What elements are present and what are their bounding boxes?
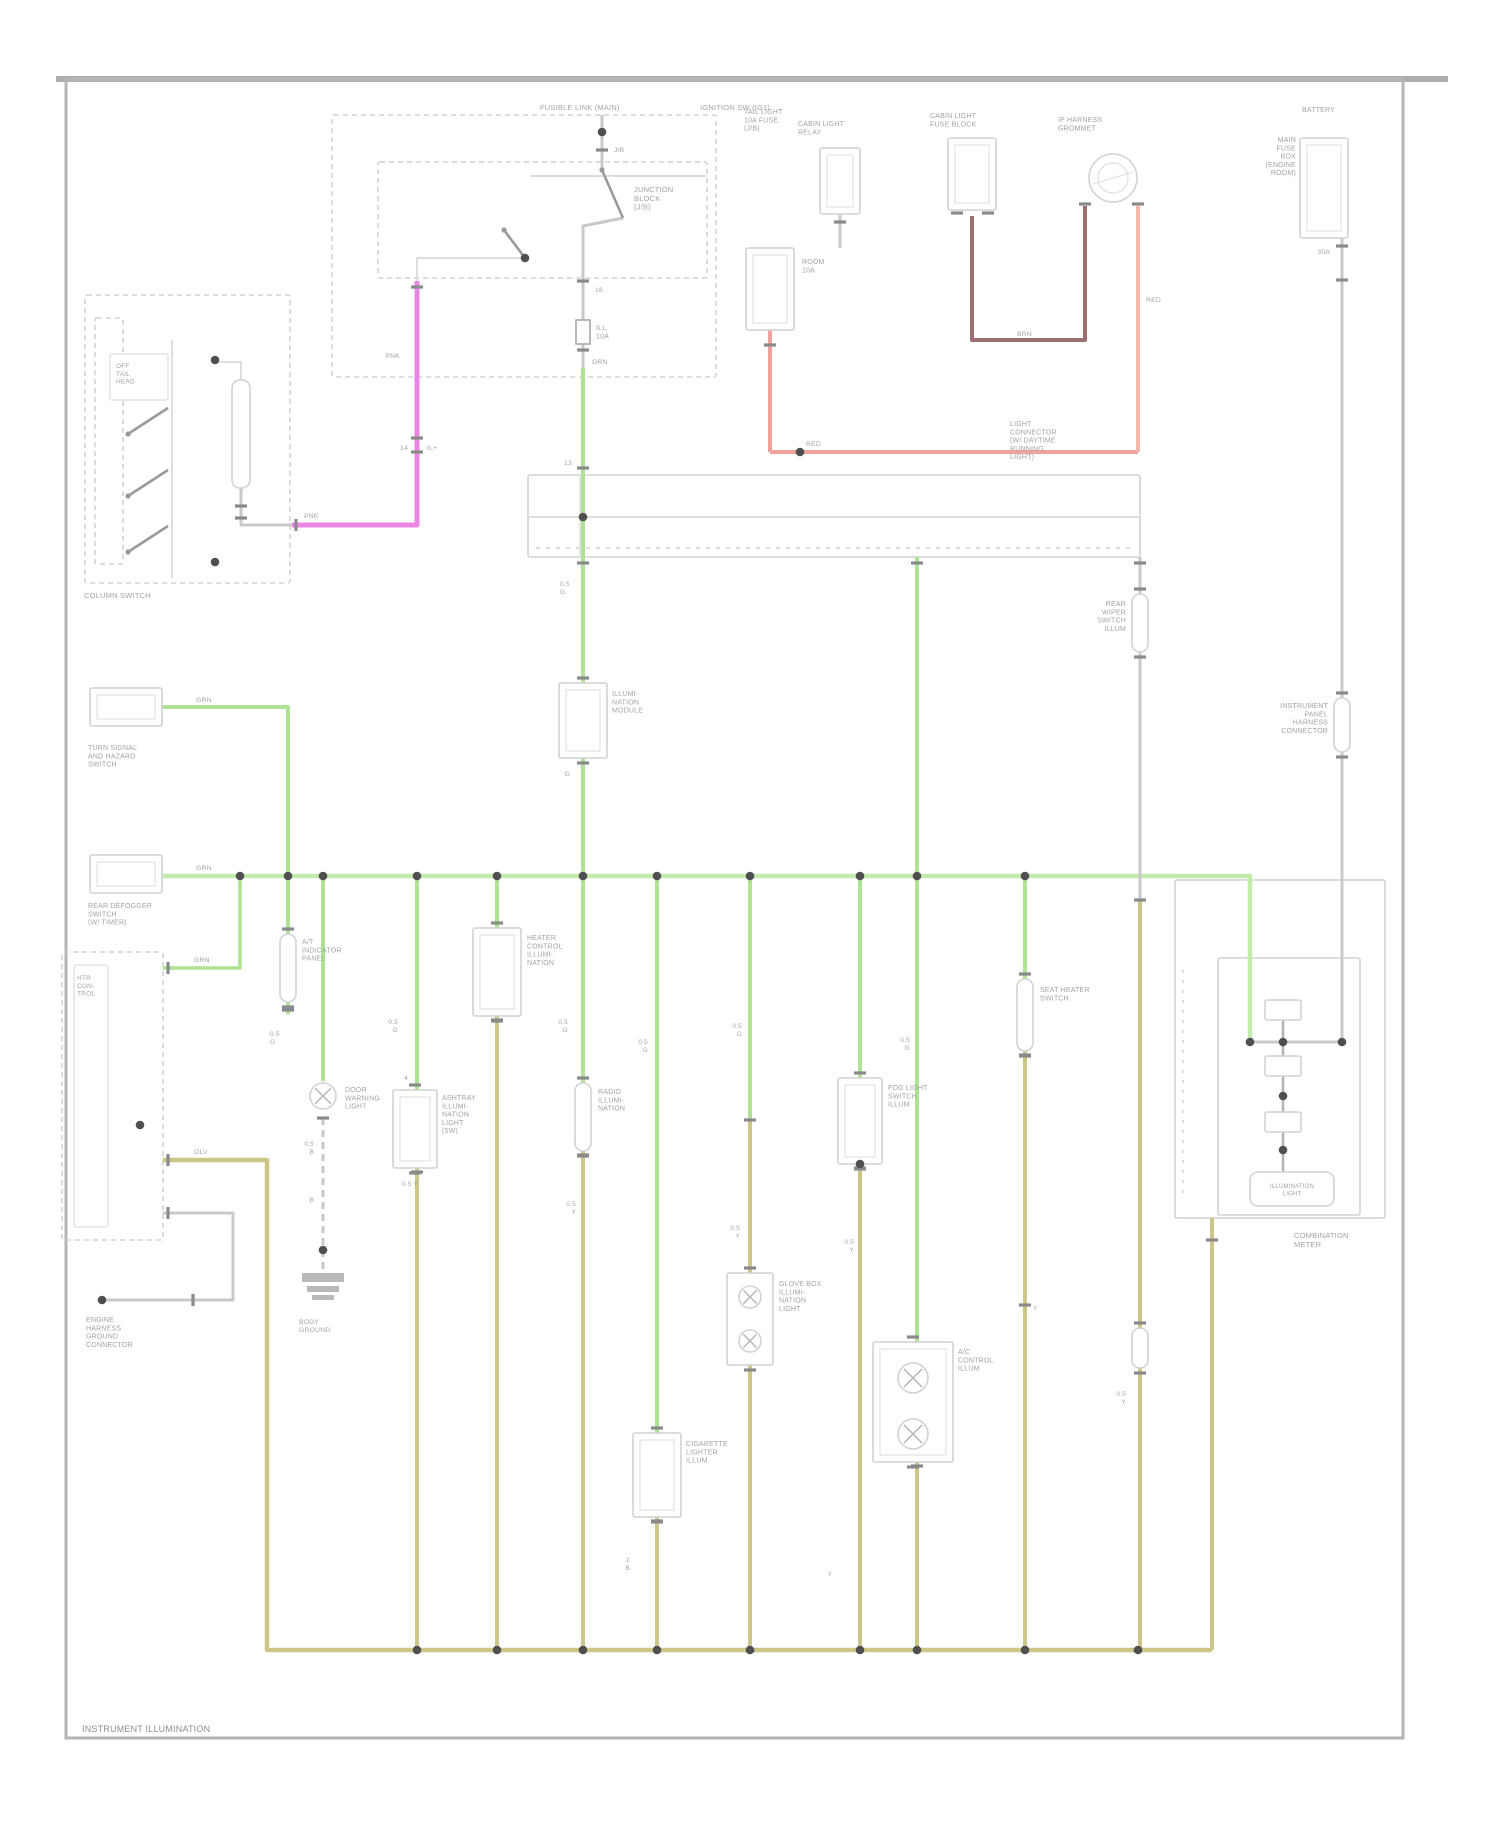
ashtray: ASHTRAYILLUMI-NATIONLIGHT(5W) <box>442 1095 476 1135</box>
connector-tick <box>411 285 423 288</box>
br657-code: 0.5G <box>638 1039 648 1054</box>
br750-code: 0.5G <box>732 1023 742 1038</box>
connector-tick <box>166 1154 169 1166</box>
bottom-bus-olive <box>163 1160 1212 1650</box>
glovebox: GLOVE BOXILLUMI-NATIONLIGHT <box>779 1281 822 1313</box>
connector-tick <box>1134 655 1146 658</box>
hc-olv: OLV <box>194 1149 208 1156</box>
junction-dot <box>98 1296 107 1305</box>
junction-dot <box>1246 1038 1255 1047</box>
main-grn: GRN <box>592 359 608 366</box>
connector-tick <box>577 676 589 679</box>
junction-block-inner <box>378 162 707 278</box>
junction-block: JUNCTIONBLOCK(J/B) <box>634 185 674 212</box>
junction-dot <box>1279 1092 1288 1101</box>
resistor-top-link <box>215 362 241 380</box>
br1025-code: Y <box>1033 1305 1038 1312</box>
dimmer-out <box>241 488 292 525</box>
connector-tick <box>1134 898 1146 901</box>
br417-code2: 0.5 Y <box>402 1181 419 1188</box>
junction-dot <box>653 872 662 881</box>
heater-ground-gray <box>102 1213 233 1300</box>
battery: BATTERY <box>1302 107 1335 114</box>
cabin-light-relay-box <box>820 148 860 214</box>
connector-tick <box>577 1076 589 1079</box>
connector-tick <box>166 1207 169 1219</box>
seat-heater-connector <box>1017 979 1033 1051</box>
junction-dot <box>579 513 588 522</box>
column-switch: COLUMN SWITCH <box>84 591 151 600</box>
body-ground-stack-bar2 <box>312 1295 334 1300</box>
heater-feed-green <box>163 876 240 968</box>
turn-signal: TURN SIGNALAND HAZARDSWITCH <box>88 745 137 769</box>
connector-tick <box>596 148 608 151</box>
connector-tick <box>409 1083 421 1086</box>
connector-tick <box>282 1005 294 1008</box>
junction-block-outer <box>332 115 716 377</box>
tail-fuse: TAIL LIGHT10A FUSE(J/B) <box>744 109 783 133</box>
connector-tick <box>411 436 423 439</box>
jb-switch-lever-2-pivot <box>501 227 506 232</box>
connector-tick <box>577 1153 589 1156</box>
feed-conn: J/B <box>614 147 625 154</box>
body-ground-stack-bar1 <box>307 1286 339 1292</box>
junction-dot <box>136 1121 145 1130</box>
heater-control-inner <box>74 965 108 1227</box>
brn-code: BRN <box>1017 331 1032 338</box>
br417-code: 0.5G <box>388 1019 398 1034</box>
junction-dot <box>579 872 588 881</box>
column-lever-3-pivot <box>125 549 130 554</box>
ip-connector: INSTRUMENTPANELHARNESSCONNECTOR <box>1280 703 1328 735</box>
connector-tick <box>1134 587 1146 590</box>
connector-tick <box>907 1335 919 1338</box>
column-lever-2-pivot <box>125 493 130 498</box>
connector-tick <box>294 519 297 531</box>
main-pin: 16 <box>595 287 603 294</box>
connector-tick <box>166 962 169 974</box>
junction-dot <box>653 1646 662 1655</box>
maroon-loop <box>972 206 1085 340</box>
junction-dot <box>319 872 328 881</box>
seat-heater: SEAT HEATERSWITCH <box>1040 987 1090 1002</box>
door-warning: DOORWARNINGLIGHT <box>345 1087 380 1111</box>
junction-dot <box>413 872 422 881</box>
lower-harness-connector <box>1132 1328 1148 1368</box>
junction-dot <box>284 872 293 881</box>
radio-illum: RADIOILLUMI-NATION <box>598 1089 625 1113</box>
junction-dot <box>1338 1038 1347 1047</box>
junction-dot <box>856 872 865 881</box>
module-out: G <box>565 771 571 778</box>
body-ground: BODYGROUND <box>299 1319 330 1334</box>
connector-tick <box>1019 972 1031 975</box>
bus-code2: Y <box>827 1571 832 1578</box>
connector-tick <box>744 1118 756 1121</box>
connector-tick <box>191 1294 194 1306</box>
connector-tick <box>854 1071 866 1074</box>
turn-signal-green <box>162 707 288 876</box>
column-lever-1-pivot <box>125 431 130 436</box>
room-fuse: ROOM10A <box>802 259 825 274</box>
connector-tick <box>1134 1371 1146 1374</box>
connector-tick <box>911 1464 923 1467</box>
connector-tick <box>411 450 423 453</box>
br917-code: 0.5G <box>900 1037 910 1052</box>
wide-pin-bottom: 0.5G <box>560 581 570 596</box>
pnk-conn-left: 14 <box>400 445 408 452</box>
def-grn: GRN <box>196 865 212 872</box>
meter-bulb-1 <box>1265 1000 1301 1020</box>
hc-grn: GRN <box>194 957 210 964</box>
junction-dot <box>521 254 530 263</box>
turn-signal-switch-box <box>90 688 162 726</box>
defogger-switch-box <box>90 855 162 893</box>
ts-grn: GRN <box>196 697 212 704</box>
pnk-conn-right: IL+ <box>427 445 437 452</box>
junction-dot <box>796 448 805 457</box>
sal-code: RED <box>1146 297 1161 304</box>
switch-link <box>583 218 623 281</box>
ill-fuse <box>576 320 590 344</box>
br323-code2: B <box>309 1197 314 1204</box>
connector-tick <box>317 1116 329 1119</box>
wiring-diagram-canvas: FUSIBLE LINK (MAIN)IGNITION SW (IG1)J/BJ… <box>0 0 1500 1828</box>
lighter-illum: CIGARETTELIGHTERILLUM <box>686 1441 728 1465</box>
ill-fuse-label: ILL10A <box>596 325 609 340</box>
column-lever-2 <box>128 470 168 496</box>
column-switch-box <box>85 295 290 583</box>
connector-tick <box>1079 202 1091 205</box>
jb-switch-lever-pivot <box>599 167 604 172</box>
ip-harness-connector <box>1334 698 1350 752</box>
ip-grommet-label: IP HARNESSGROMMET <box>1058 117 1102 132</box>
connector-tick <box>1336 755 1348 758</box>
junction-dot <box>1279 1038 1288 1047</box>
connector-tick <box>577 561 589 564</box>
connector-tick <box>911 561 923 564</box>
junction-dot <box>493 1646 502 1655</box>
connector-tick <box>1134 561 1146 564</box>
br860-code: 0.5Y <box>844 1239 854 1254</box>
connector-tick <box>744 1368 756 1371</box>
connector-tick <box>282 1008 294 1011</box>
red-code: RED <box>806 441 821 448</box>
defogger: REAR DEFOGGERSWITCH(W/ TIMER) <box>88 903 152 927</box>
connector-tick <box>1206 1238 1218 1241</box>
rear-wiper-connector <box>1132 594 1148 652</box>
connector-tick <box>982 211 994 214</box>
br417-pin: 4 <box>404 1075 408 1082</box>
body-ground-stack-bar0 <box>302 1273 344 1282</box>
connector-tick <box>1336 691 1348 694</box>
heater-illum: HEATERCONTROLILLUMI-NATION <box>527 935 563 967</box>
connector-tick <box>577 348 589 351</box>
connector-tick <box>411 1170 423 1173</box>
combination-meter: COMBINATIONMETER <box>1294 1231 1349 1249</box>
light-connector: LIGHTCONNECTOR(W/ DAYTIMERUNNINGLIGHT) <box>1010 421 1057 461</box>
ac-control: A/CCONTROLILLUM <box>958 1349 994 1373</box>
junction-dot <box>913 872 922 881</box>
dimmer-resistor <box>232 380 250 488</box>
column-lever-1 <box>128 408 168 434</box>
br750-code2: 0.5Y <box>730 1225 740 1240</box>
junction-dot <box>746 1646 755 1655</box>
br583-code2: 0.5Y <box>566 1201 576 1216</box>
illum-module: ILLUMI-NATIONMODULE <box>612 691 643 715</box>
meter-resistor <box>1265 1056 1301 1076</box>
connector-tick <box>282 927 294 930</box>
radio-illum-connector <box>575 1083 591 1151</box>
connector-tick <box>577 761 589 764</box>
junction-dot <box>579 1646 588 1655</box>
harness-ground: ENGINEHARNESSGROUNDCONNECTOR <box>86 1317 133 1349</box>
battery-amp: 30A <box>1317 249 1330 256</box>
connector-tick <box>1336 278 1348 281</box>
jb-switch-lever-2 <box>504 230 525 258</box>
br583-code: 0.5G <box>558 1019 568 1034</box>
connector-tick <box>744 1266 756 1269</box>
connector-tick <box>651 1519 663 1522</box>
connector-tick <box>1019 1053 1031 1056</box>
junction-dot <box>1279 1146 1288 1155</box>
junction-dot <box>1021 1646 1030 1655</box>
junction-dot <box>211 558 220 567</box>
bus-code1: 2B <box>625 1557 630 1572</box>
column-lever-3 <box>128 526 168 552</box>
cabin-relay: CABIN LIGHTRELAY <box>798 121 845 136</box>
cabin-fuse: CABIN LIGHTFUSE BLOCK <box>930 113 977 128</box>
junction-dot <box>211 356 220 365</box>
junction-dot <box>319 1246 328 1255</box>
connector-tick <box>834 220 846 223</box>
junction-dot <box>746 872 755 881</box>
at-indicator-connector <box>280 934 296 1002</box>
junction-dot <box>856 1160 865 1169</box>
meter-bulb-2 <box>1265 1112 1301 1132</box>
jb-switch-lever <box>602 170 623 218</box>
pnk-code: PNK <box>385 353 400 360</box>
connector-tick <box>764 343 776 346</box>
connector-tick <box>1336 244 1348 247</box>
connector-tick <box>1132 202 1144 205</box>
connector-tick <box>577 279 589 282</box>
pink-wire <box>292 281 417 525</box>
br288-code: 0.5G <box>270 1031 280 1046</box>
rear-wiper: REARWIPERSWITCHILLUM <box>1097 601 1126 633</box>
junction-dot <box>856 1646 865 1655</box>
connector-tick <box>235 516 247 519</box>
connector-tick <box>651 1426 663 1429</box>
connector-tick <box>577 466 589 469</box>
connector-tick <box>951 211 963 214</box>
br323-code1: 0.5B <box>304 1141 314 1156</box>
junction-dot <box>1134 1646 1143 1655</box>
wiring-diagram-page: INSTRUMENT ILLUMINATION FUSIBLE LINK (MA… <box>0 0 1500 1828</box>
fog-switch: FOG LIGHTSWITCHILLUM <box>888 1085 928 1109</box>
junction-dot <box>913 1646 922 1655</box>
main-fuse-box: MAINFUSEBOX(ENGINEROOM) <box>1265 137 1296 177</box>
pnk-code-2: PNK <box>304 513 319 520</box>
wide-pin-top: 13 <box>564 460 572 467</box>
connector-tick <box>235 504 247 507</box>
junction-dot <box>236 872 245 881</box>
connector-tick <box>1019 1303 1031 1306</box>
ref-fusible-link: FUSIBLE LINK (MAIN) <box>540 103 620 112</box>
page-title: INSTRUMENT ILLUMINATION <box>82 1724 210 1734</box>
junction-dot <box>413 1646 422 1655</box>
connector-tick <box>491 921 503 924</box>
junction-dot <box>598 128 607 137</box>
junction-dot <box>493 872 502 881</box>
connector-tick <box>491 1018 503 1021</box>
junction-dot <box>1021 872 1030 881</box>
connector-tick <box>1134 1321 1146 1324</box>
br1138-code: 0.5Y <box>1116 1391 1126 1406</box>
